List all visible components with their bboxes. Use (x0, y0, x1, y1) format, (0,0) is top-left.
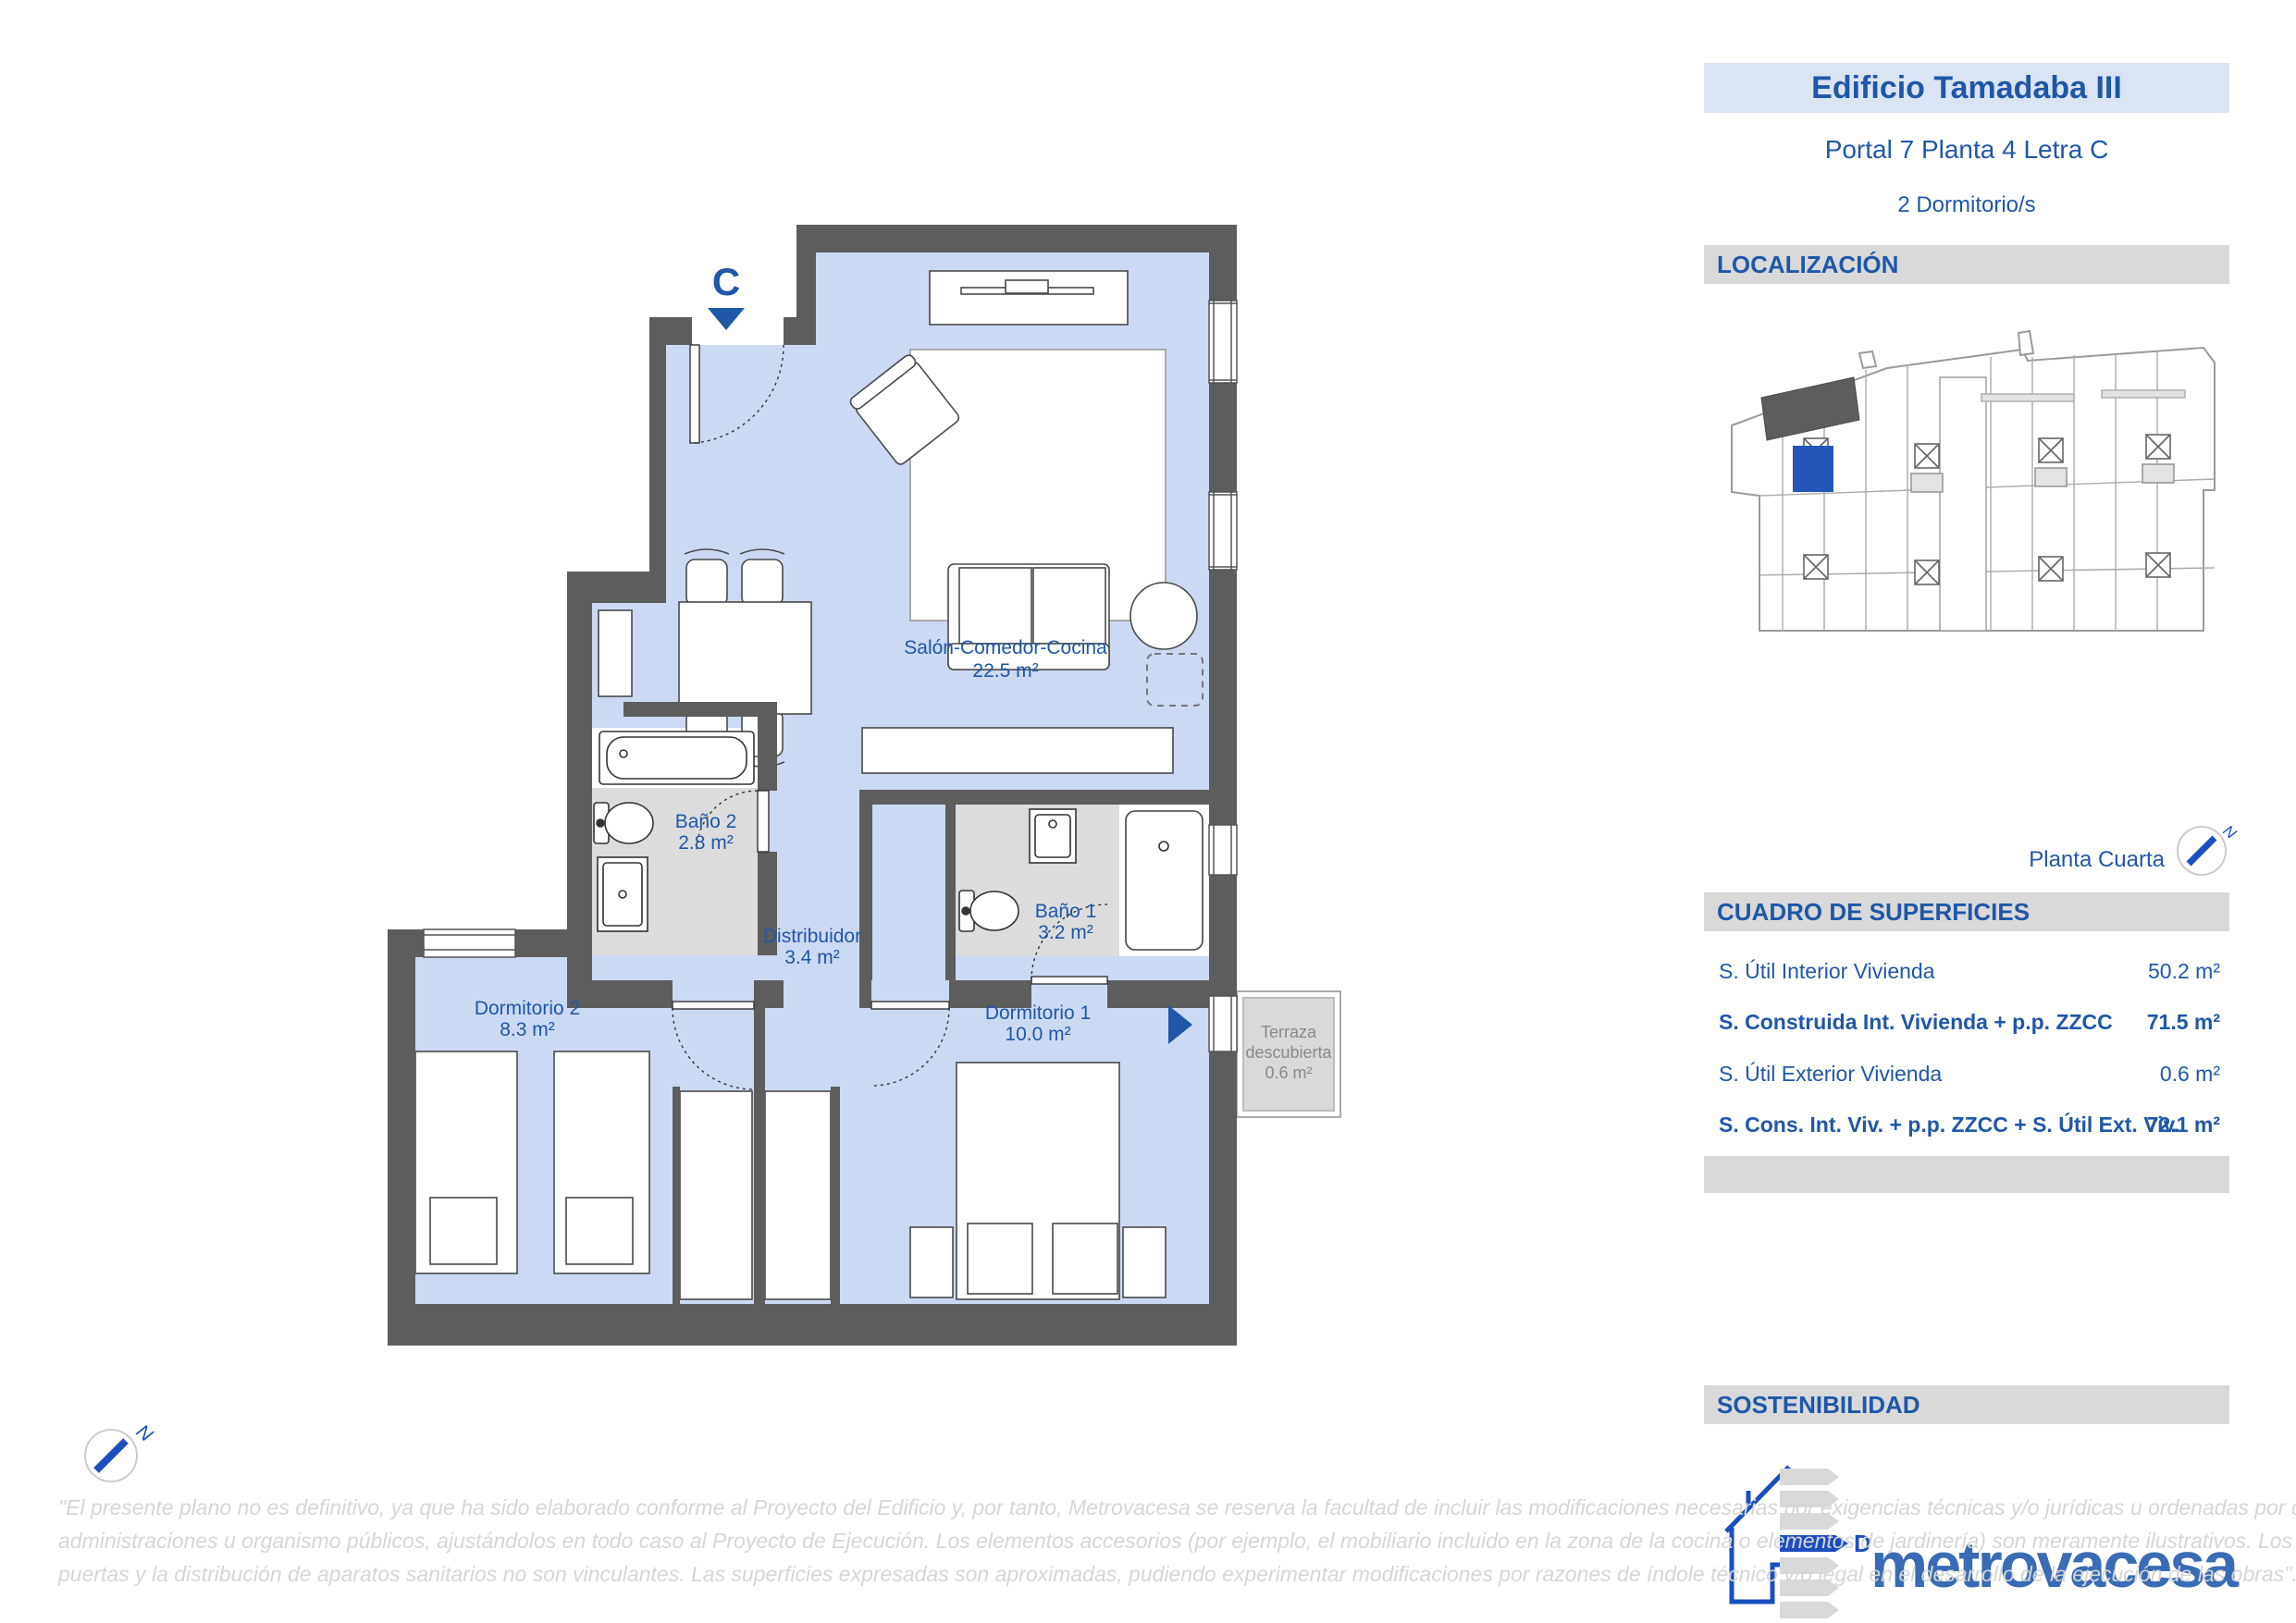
room-label: Baño 2 (675, 811, 737, 832)
table-row: S. Cons. Int. Viv. + p.p. ZZCC + S. Útil… (1704, 1106, 2229, 1143)
room-label: Salón-Comedor-Cocina (904, 637, 1107, 658)
compass-icon: N (2170, 812, 2244, 886)
window-icon (1209, 492, 1237, 570)
single-bed-icon (554, 1051, 649, 1273)
north-label: N (132, 1420, 157, 1446)
room-label: Dormitorio 1 (985, 1002, 1091, 1024)
building-title: Edificio Tamadaba III (1704, 63, 2229, 113)
floor-plan: C Salón-Comedor-Cocina 22.5 m² Baño 2 2.… (361, 199, 1351, 1355)
bedrooms-count: 2 Dormitorio/s (1704, 192, 2229, 218)
floor-plan-sheet: Edificio Tamadaba III Portal 7 Planta 4 … (0, 0, 2296, 1623)
wardrobe-icon (765, 1091, 831, 1299)
localizacion-title: LOCALIZACIÓN (1717, 251, 1898, 278)
surface-value: 50.2 m² (2148, 953, 2220, 990)
room-area: 22.5 m² (972, 660, 1038, 682)
sink-icon (598, 857, 648, 931)
room-area: 3.2 m² (1038, 922, 1093, 943)
surface-label: S. Útil Exterior Vivienda (1719, 1055, 1942, 1092)
disclaimer-line: administraciones u organismo públicos, a… (58, 1524, 1723, 1557)
window-icon (424, 929, 515, 957)
double-bed-icon (957, 1063, 1119, 1299)
entrance-letter: C (712, 260, 740, 303)
sostenibilidad-title: SOSTENIBILIDAD (1717, 1391, 1920, 1419)
nightstand-icon (910, 1227, 953, 1297)
single-bed-icon (415, 1051, 517, 1273)
room-area: 8.3 m² (500, 1019, 555, 1040)
bathtub-icon (599, 732, 754, 784)
table-row: S. Útil Exterior Vivienda 0.6 m² (1704, 1055, 2229, 1092)
site-highlighted-unit (1793, 446, 1833, 492)
window-icon (1209, 301, 1237, 383)
unit-subtitle: Portal 7 Planta 4 Letra C (1704, 135, 2229, 165)
surface-label: S. Construida Int. Vivienda + p.p. ZZCC (1719, 1003, 2113, 1040)
room-label: Terraza (1261, 1023, 1317, 1041)
tv-sideboard-icon (930, 271, 1128, 325)
side-table-icon (1130, 583, 1197, 649)
room-area: 10.0 m² (1005, 1024, 1070, 1045)
surface-label: S. Útil Interior Vivienda (1719, 953, 1935, 990)
nightstand-icon (1123, 1227, 1166, 1297)
toilet-icon (959, 891, 1018, 931)
room-label: descubierta (1245, 1043, 1332, 1062)
room-label: Dormitorio 2 (475, 998, 580, 1019)
toilet-icon (594, 803, 653, 843)
room-area: 3.4 m² (784, 947, 840, 968)
sink-icon (1030, 809, 1076, 863)
sostenibilidad-section-header: SOSTENIBILIDAD (1704, 1385, 2229, 1424)
entrance-arrow-icon (708, 308, 745, 330)
surface-value: 0.6 m² (2160, 1055, 2220, 1092)
surface-value: 72.1 m² (2147, 1106, 2220, 1143)
localizacion-section-header: LOCALIZACIÓN (1704, 245, 2229, 284)
wardrobe-icon (680, 1091, 752, 1299)
entrance-marker: C (708, 260, 745, 330)
kitchen-counter-icon (862, 728, 1173, 773)
room-area: 0.6 m² (1265, 1064, 1312, 1082)
room-area: 2.8 m² (678, 832, 734, 854)
location-site-map (1704, 305, 2229, 694)
table-row: S. Útil Interior Vivienda 50.2 m² (1704, 953, 2229, 990)
floor-name: Planta Cuarta (2029, 847, 2165, 873)
superficies-title: CUADRO DE SUPERFICIES (1717, 898, 2030, 926)
room-label: Distribuidor (763, 926, 861, 947)
window-icon (1209, 825, 1237, 875)
panel-divider-bar (1704, 1156, 2229, 1193)
kitchen-cabinet-icon (599, 610, 632, 696)
surface-label: S. Cons. Int. Viv. + p.p. ZZCC + S. Útil… (1719, 1106, 2179, 1143)
window-icon (1209, 996, 1237, 1051)
table-row: S. Construida Int. Vivienda + p.p. ZZCC … (1704, 1003, 2229, 1040)
disclaimer-line: "El presente plano no es definitivo, ya … (58, 1491, 1723, 1524)
superficies-section-header: CUADRO DE SUPERFICIES (1704, 892, 2229, 931)
room-label: Baño 1 (1035, 901, 1097, 922)
disclaimer-line: puertas y la distribución de aparatos sa… (58, 1557, 1723, 1591)
surface-value: 71.5 m² (2147, 1003, 2220, 1040)
